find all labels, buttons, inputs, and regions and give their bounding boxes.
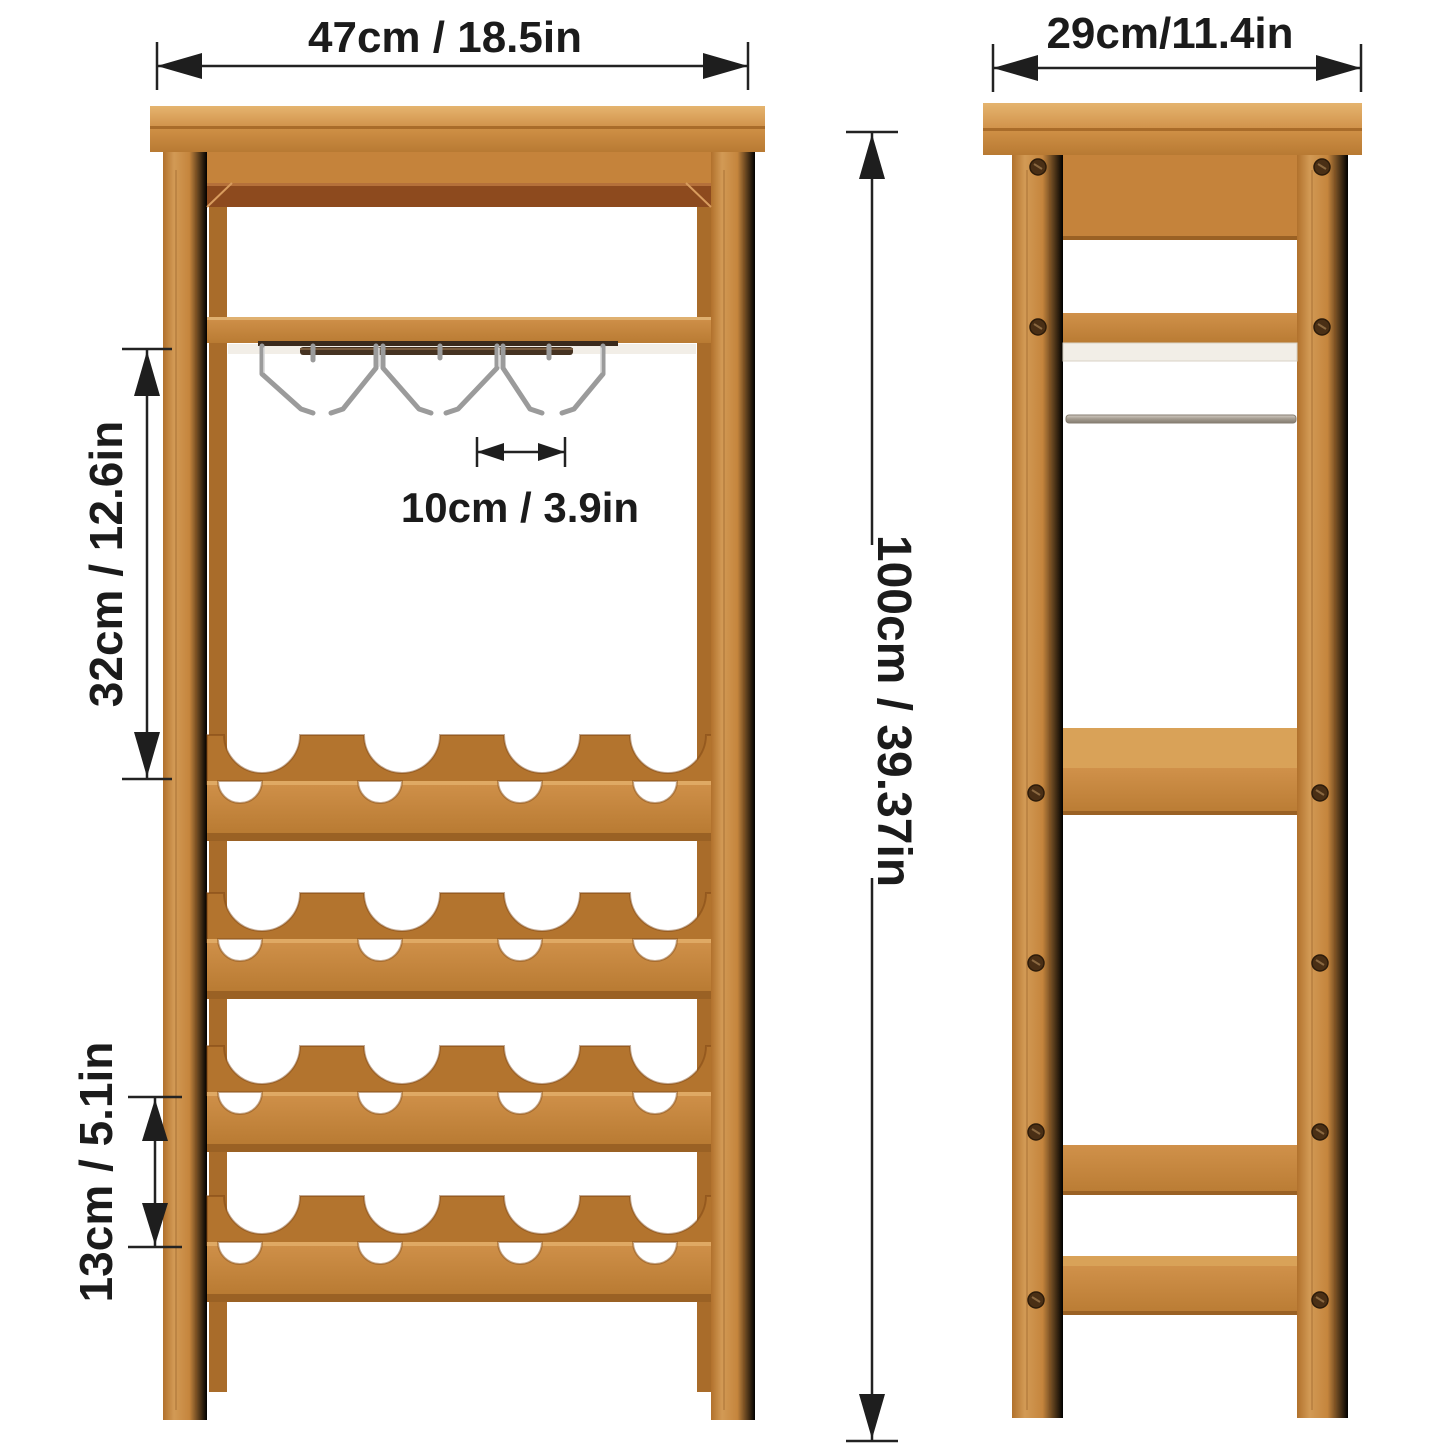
arrowhead-top — [134, 351, 160, 396]
arrowhead-right — [703, 53, 748, 79]
front-dark-rail — [207, 183, 711, 207]
side-leg-left — [1012, 150, 1063, 1418]
dimension-hanger-spacing: 10cm / 3.9in — [401, 437, 639, 531]
side-shelf-white-edge — [1063, 343, 1297, 361]
front-view — [150, 106, 765, 1420]
arrowhead-bottom — [134, 732, 160, 777]
arrowhead-bottom — [859, 1394, 885, 1439]
side-tabletop-surface — [983, 103, 1362, 130]
arrowhead-left — [993, 55, 1038, 81]
side-mid-rail-top — [1063, 728, 1297, 768]
arrowhead-left — [157, 53, 202, 79]
side-rail-upper — [1063, 313, 1297, 343]
row-gap-label: 13cm / 5.1in — [70, 1042, 122, 1303]
front-tabletop-surface — [150, 106, 765, 128]
side-lower-rail — [1063, 1145, 1297, 1195]
wine-row-3 — [207, 1046, 711, 1152]
dimension-front-width: 47cm / 18.5in — [157, 13, 748, 90]
hanger-spacing-label: 10cm / 3.9in — [401, 484, 639, 531]
arrowhead-right — [1316, 55, 1361, 81]
stemware-hangers — [262, 346, 603, 413]
side-bottom-rail — [1063, 1266, 1297, 1315]
arrowhead-top — [859, 134, 885, 179]
arrowhead-left — [477, 443, 504, 461]
side-view — [983, 103, 1362, 1418]
side-metal-rod — [1066, 415, 1296, 423]
wine-row-4 — [207, 1196, 711, 1302]
front-leg-left — [163, 150, 207, 1420]
wine-row-2 — [207, 893, 711, 999]
side-depth-label: 29cm/11.4in — [1046, 9, 1293, 58]
glass-rack-shelf — [207, 317, 711, 343]
dimension-overall-height: 100cm / 39.37in — [846, 132, 920, 1441]
front-leg-right — [711, 150, 755, 1420]
side-mid-rail — [1063, 768, 1297, 815]
arrowhead-right — [538, 443, 565, 461]
dimension-glass-rack-height: 32cm / 12.6in — [80, 349, 172, 779]
side-tabletop-edge — [983, 130, 1362, 155]
wine-row-1 — [207, 735, 711, 841]
product-dimension-diagram: 47cm / 18.5in 29cm/11.4in 32cm / 12.6in … — [0, 0, 1445, 1445]
front-width-label: 47cm / 18.5in — [308, 13, 582, 62]
front-apron — [207, 152, 711, 183]
front-tabletop-edge — [150, 128, 765, 152]
glass-rack-height-label: 32cm / 12.6in — [80, 421, 132, 707]
dimension-side-depth: 29cm/11.4in — [993, 9, 1361, 92]
wine-rack-diagram: 47cm / 18.5in 29cm/11.4in 32cm / 12.6in … — [0, 0, 1445, 1445]
side-leg-right — [1297, 150, 1348, 1418]
overall-height-label: 100cm / 39.37in — [867, 535, 920, 887]
side-bottom-rail-top — [1063, 1256, 1297, 1266]
side-apron — [1063, 155, 1297, 240]
